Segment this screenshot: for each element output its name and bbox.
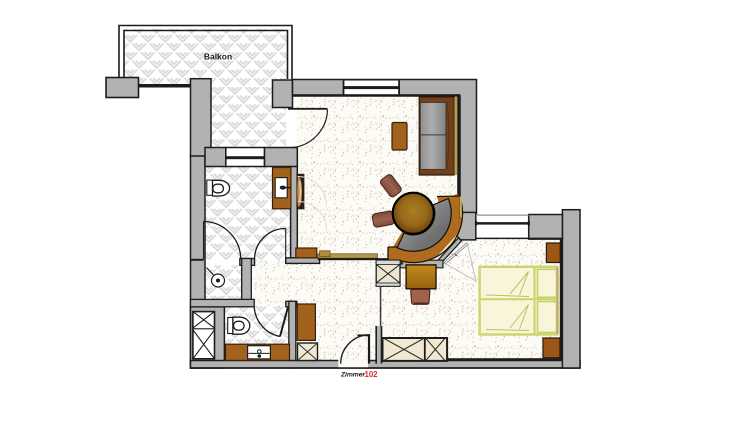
svg-text:Balkon: Balkon <box>204 52 232 62</box>
svg-text:102: 102 <box>365 370 379 379</box>
svg-text:Zimmer: Zimmer <box>340 372 365 379</box>
